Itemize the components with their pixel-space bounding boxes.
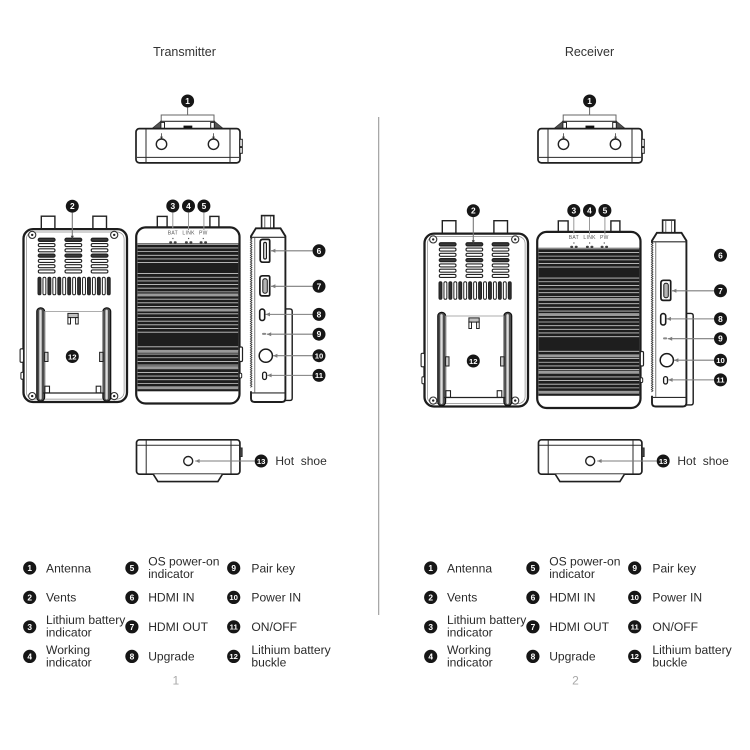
svg-text:4: 4: [587, 206, 592, 216]
svg-text:5: 5: [130, 563, 135, 573]
svg-text:BAT: BAT: [569, 235, 579, 241]
svg-text:Upgrade: Upgrade: [549, 650, 596, 664]
svg-text:Pair key: Pair key: [251, 561, 296, 575]
svg-text:1: 1: [587, 96, 592, 106]
svg-text:Power IN: Power IN: [652, 591, 702, 605]
svg-text:7: 7: [130, 622, 135, 632]
svg-text:HDMI IN: HDMI IN: [148, 591, 194, 605]
svg-text:3: 3: [428, 622, 433, 632]
svg-text:10: 10: [229, 593, 238, 602]
svg-text:6: 6: [130, 592, 135, 602]
svg-text:6: 6: [317, 246, 322, 256]
svg-text:ON/OFF: ON/OFF: [251, 620, 297, 634]
svg-text:1: 1: [428, 563, 433, 573]
svg-text:Power IN: Power IN: [251, 591, 301, 605]
svg-text:10: 10: [716, 356, 725, 365]
svg-text:12: 12: [469, 357, 478, 366]
svg-text:10: 10: [315, 352, 324, 361]
svg-text:ON/OFF: ON/OFF: [652, 620, 698, 634]
svg-text:indicator: indicator: [447, 626, 493, 640]
svg-text:5: 5: [603, 206, 608, 216]
svg-text:11: 11: [315, 371, 324, 380]
svg-text:8: 8: [130, 651, 135, 661]
svg-text:Receiver: Receiver: [565, 45, 614, 59]
svg-text:Hot shoe: Hot shoe: [677, 454, 729, 468]
svg-text:Pair key: Pair key: [652, 561, 697, 575]
svg-text:6: 6: [718, 250, 723, 260]
svg-text:9: 9: [231, 563, 236, 573]
svg-text:3: 3: [571, 206, 576, 216]
svg-text:LINK: LINK: [182, 231, 195, 237]
svg-text:12: 12: [229, 652, 238, 661]
svg-text:indicator: indicator: [447, 655, 493, 669]
svg-text:2: 2: [572, 674, 579, 688]
svg-text:6: 6: [531, 592, 536, 602]
svg-text:buckle: buckle: [652, 655, 687, 669]
svg-text:2: 2: [428, 592, 433, 602]
svg-text:12: 12: [68, 352, 77, 361]
svg-text:10: 10: [630, 593, 639, 602]
svg-text:PW: PW: [199, 231, 208, 237]
svg-text:indicator: indicator: [148, 567, 194, 581]
svg-text:4: 4: [186, 201, 191, 211]
svg-text:1: 1: [27, 563, 32, 573]
svg-text:13: 13: [659, 457, 668, 466]
svg-text:4: 4: [27, 651, 32, 661]
svg-text:Transmitter: Transmitter: [153, 45, 216, 59]
svg-text:Antenna: Antenna: [46, 561, 91, 575]
svg-text:8: 8: [718, 314, 723, 324]
svg-text:8: 8: [317, 309, 322, 319]
svg-text:HDMI OUT: HDMI OUT: [148, 620, 208, 634]
svg-text:1: 1: [172, 674, 179, 688]
svg-text:LINK: LINK: [583, 235, 596, 241]
svg-text:3: 3: [27, 622, 32, 632]
svg-text:indicator: indicator: [46, 626, 92, 640]
svg-text:11: 11: [631, 623, 640, 632]
svg-text:7: 7: [531, 622, 536, 632]
svg-text:9: 9: [632, 563, 637, 573]
svg-text:12: 12: [630, 652, 639, 661]
svg-text:11: 11: [716, 376, 725, 385]
svg-text:Upgrade: Upgrade: [148, 650, 195, 664]
svg-text:PW: PW: [600, 235, 609, 241]
svg-text:9: 9: [317, 329, 322, 339]
svg-text:Hot shoe: Hot shoe: [275, 454, 327, 468]
svg-text:buckle: buckle: [251, 655, 286, 669]
svg-text:11: 11: [230, 623, 239, 632]
svg-text:7: 7: [718, 286, 723, 296]
svg-text:indicator: indicator: [549, 567, 595, 581]
svg-text:2: 2: [70, 201, 75, 211]
svg-text:1: 1: [185, 96, 190, 106]
svg-text:3: 3: [170, 201, 175, 211]
svg-text:8: 8: [531, 651, 536, 661]
svg-text:HDMI OUT: HDMI OUT: [549, 620, 609, 634]
svg-text:7: 7: [317, 281, 322, 291]
svg-text:Vents: Vents: [447, 591, 477, 605]
svg-text:Antenna: Antenna: [447, 561, 492, 575]
svg-text:Vents: Vents: [46, 591, 76, 605]
svg-text:indicator: indicator: [46, 655, 92, 669]
svg-text:4: 4: [428, 651, 433, 661]
svg-text:2: 2: [471, 206, 476, 216]
svg-text:2: 2: [27, 592, 32, 602]
svg-text:5: 5: [531, 563, 536, 573]
svg-text:13: 13: [257, 457, 266, 466]
svg-text:HDMI IN: HDMI IN: [549, 591, 595, 605]
svg-text:9: 9: [718, 334, 723, 344]
svg-text:5: 5: [202, 201, 207, 211]
svg-text:BAT: BAT: [168, 231, 178, 237]
